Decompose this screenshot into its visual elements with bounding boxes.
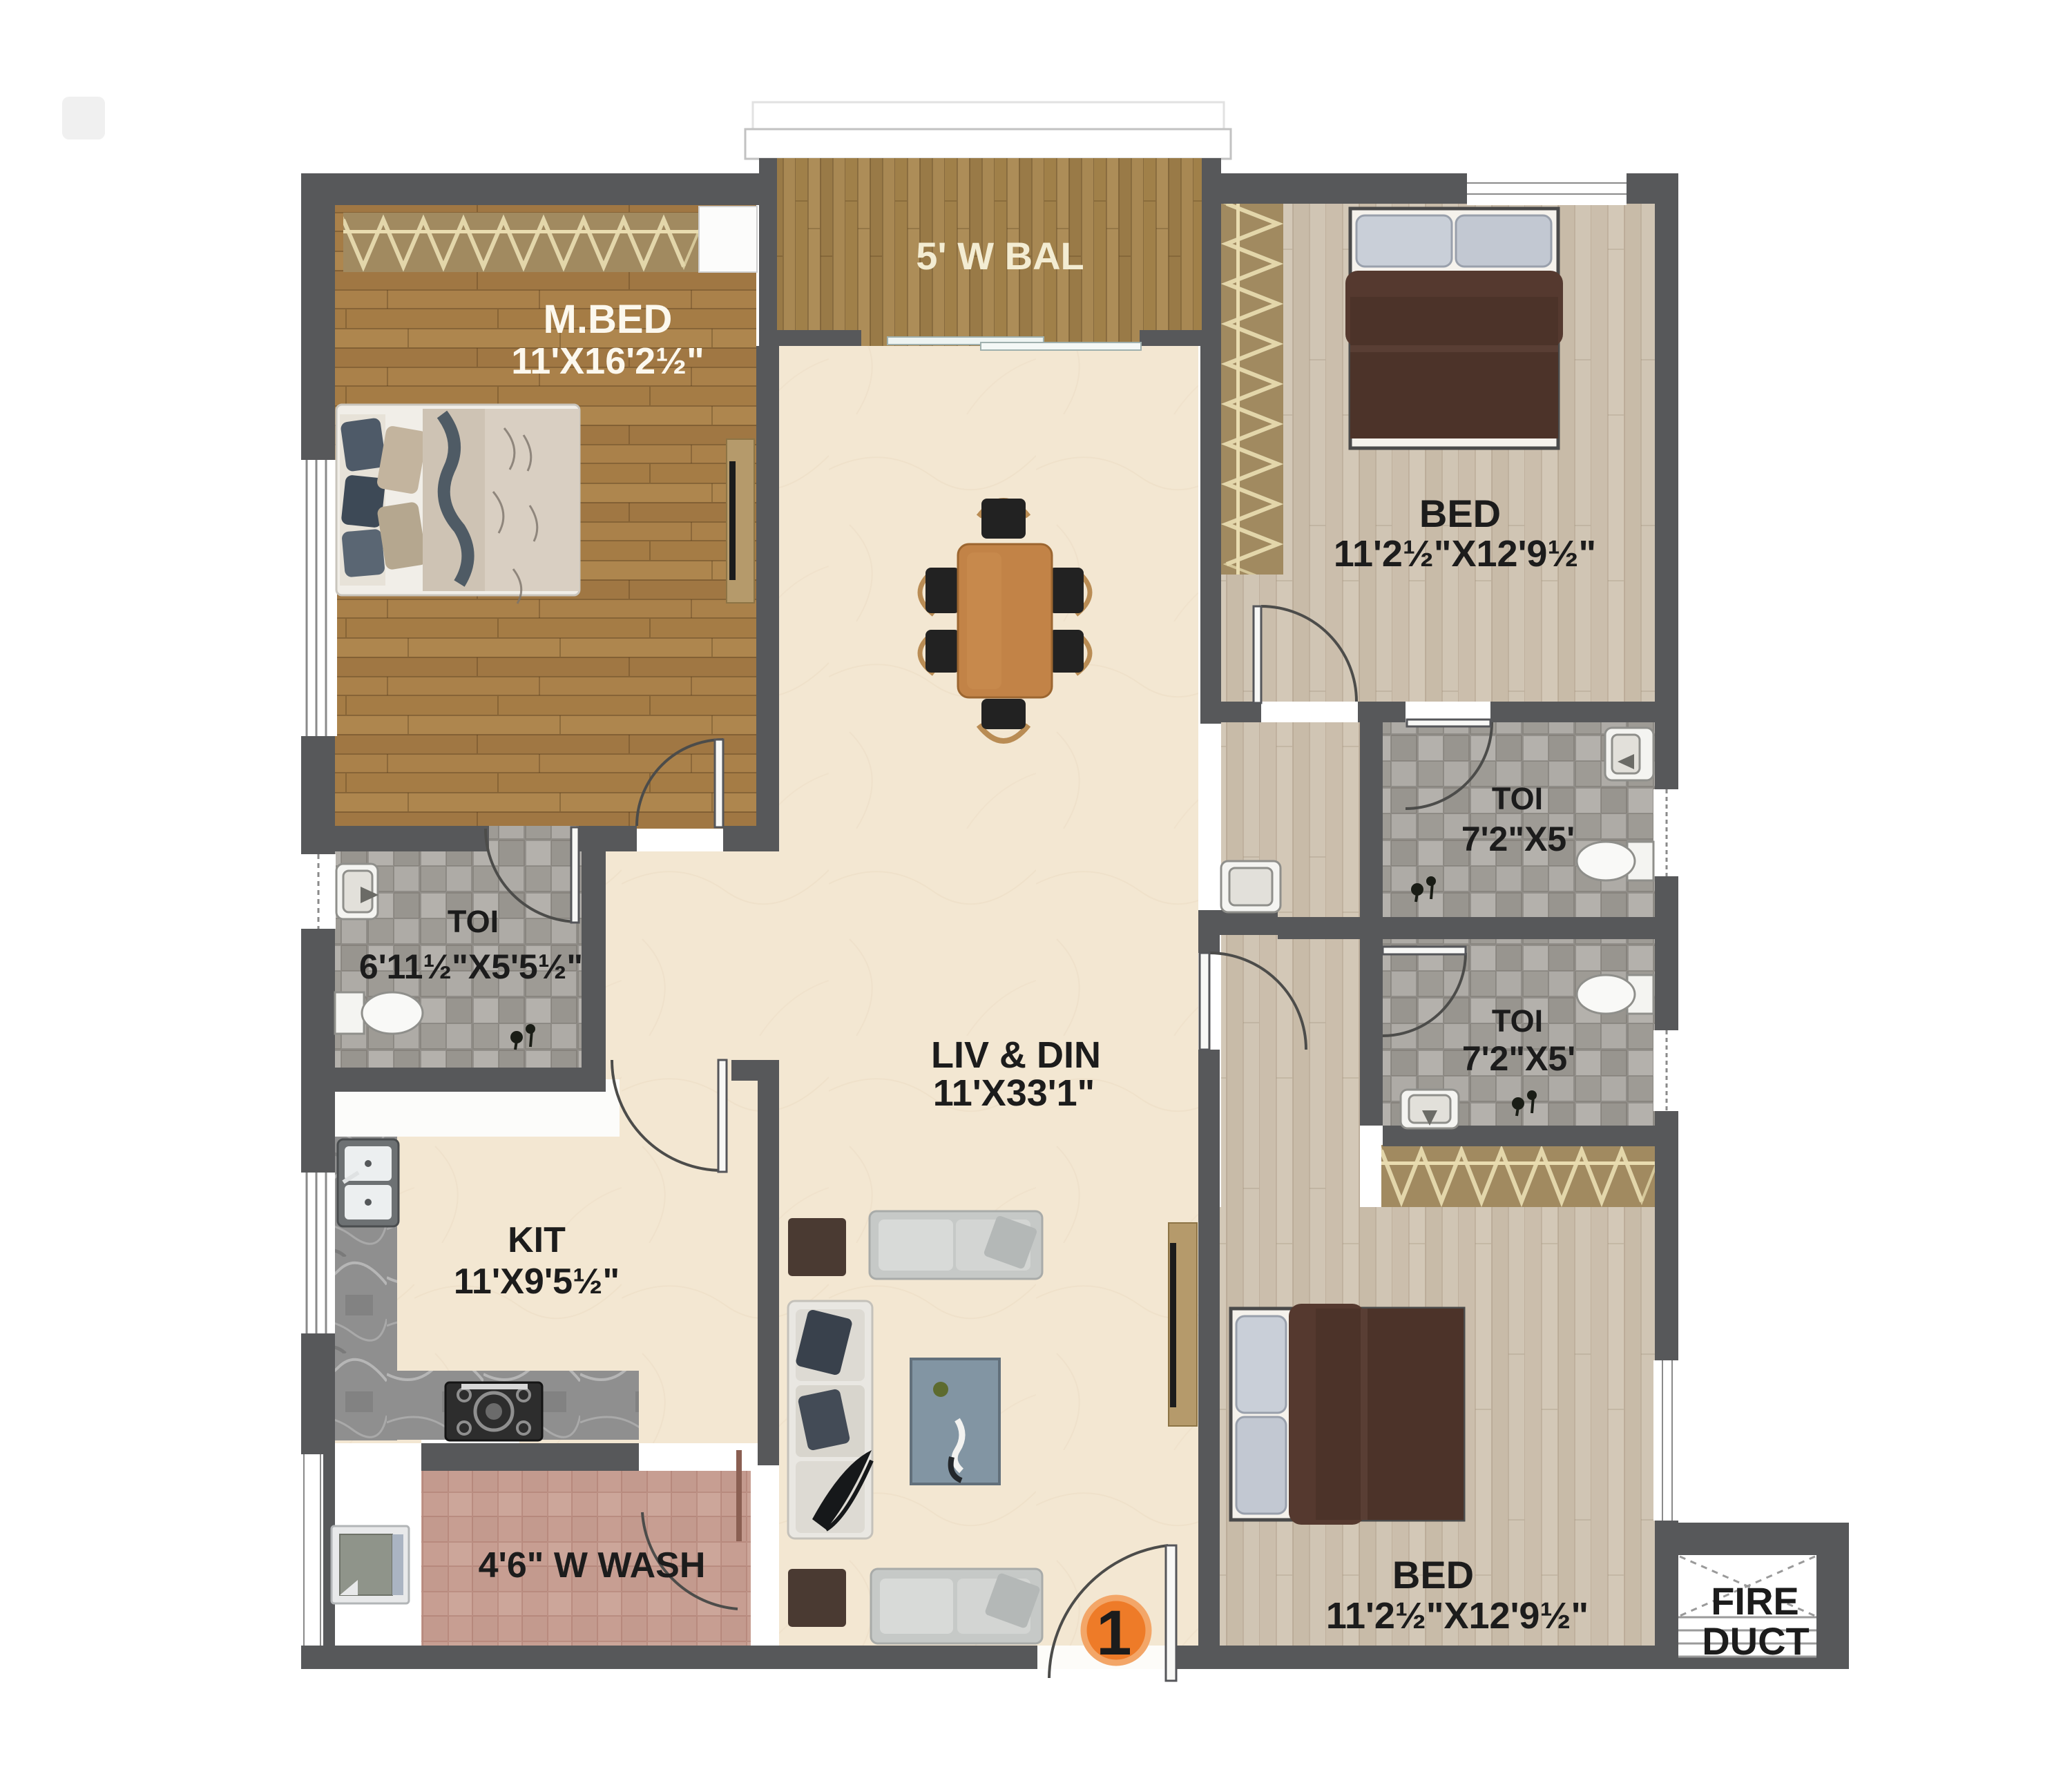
svg-text:11'X9'5½": 11'X9'5½" <box>454 1262 620 1302</box>
svg-text:TOI: TOI <box>1492 1003 1543 1039</box>
svg-text:4'6" W WASH: 4'6" W WASH <box>479 1545 706 1585</box>
svg-text:DUCT: DUCT <box>1702 1619 1810 1663</box>
svg-text:LIV & DIN: LIV & DIN <box>931 1034 1101 1076</box>
svg-text:M.BED: M.BED <box>544 297 673 342</box>
svg-text:11'2½"X12'9½": 11'2½"X12'9½" <box>1334 533 1596 575</box>
svg-text:5' W BAL: 5' W BAL <box>916 234 1084 278</box>
svg-text:6'11½"X5'5½": 6'11½"X5'5½" <box>359 947 583 986</box>
svg-text:1: 1 <box>1096 1598 1131 1668</box>
svg-text:FIRE: FIRE <box>1711 1579 1799 1623</box>
svg-text:11'2½"X12'9½": 11'2½"X12'9½" <box>1326 1595 1589 1637</box>
svg-text:BED: BED <box>1419 492 1501 535</box>
svg-text:11'X33'1": 11'X33'1" <box>933 1072 1095 1114</box>
svg-text:TOI: TOI <box>1492 781 1543 816</box>
svg-text:TOI: TOI <box>448 904 499 939</box>
svg-text:11'X16'2½": 11'X16'2½" <box>511 340 704 382</box>
svg-text:7'2"X5': 7'2"X5' <box>1461 820 1575 858</box>
svg-text:7'2"X5': 7'2"X5' <box>1462 1039 1575 1078</box>
svg-text:KIT: KIT <box>508 1220 566 1260</box>
svg-text:BED: BED <box>1392 1553 1474 1597</box>
